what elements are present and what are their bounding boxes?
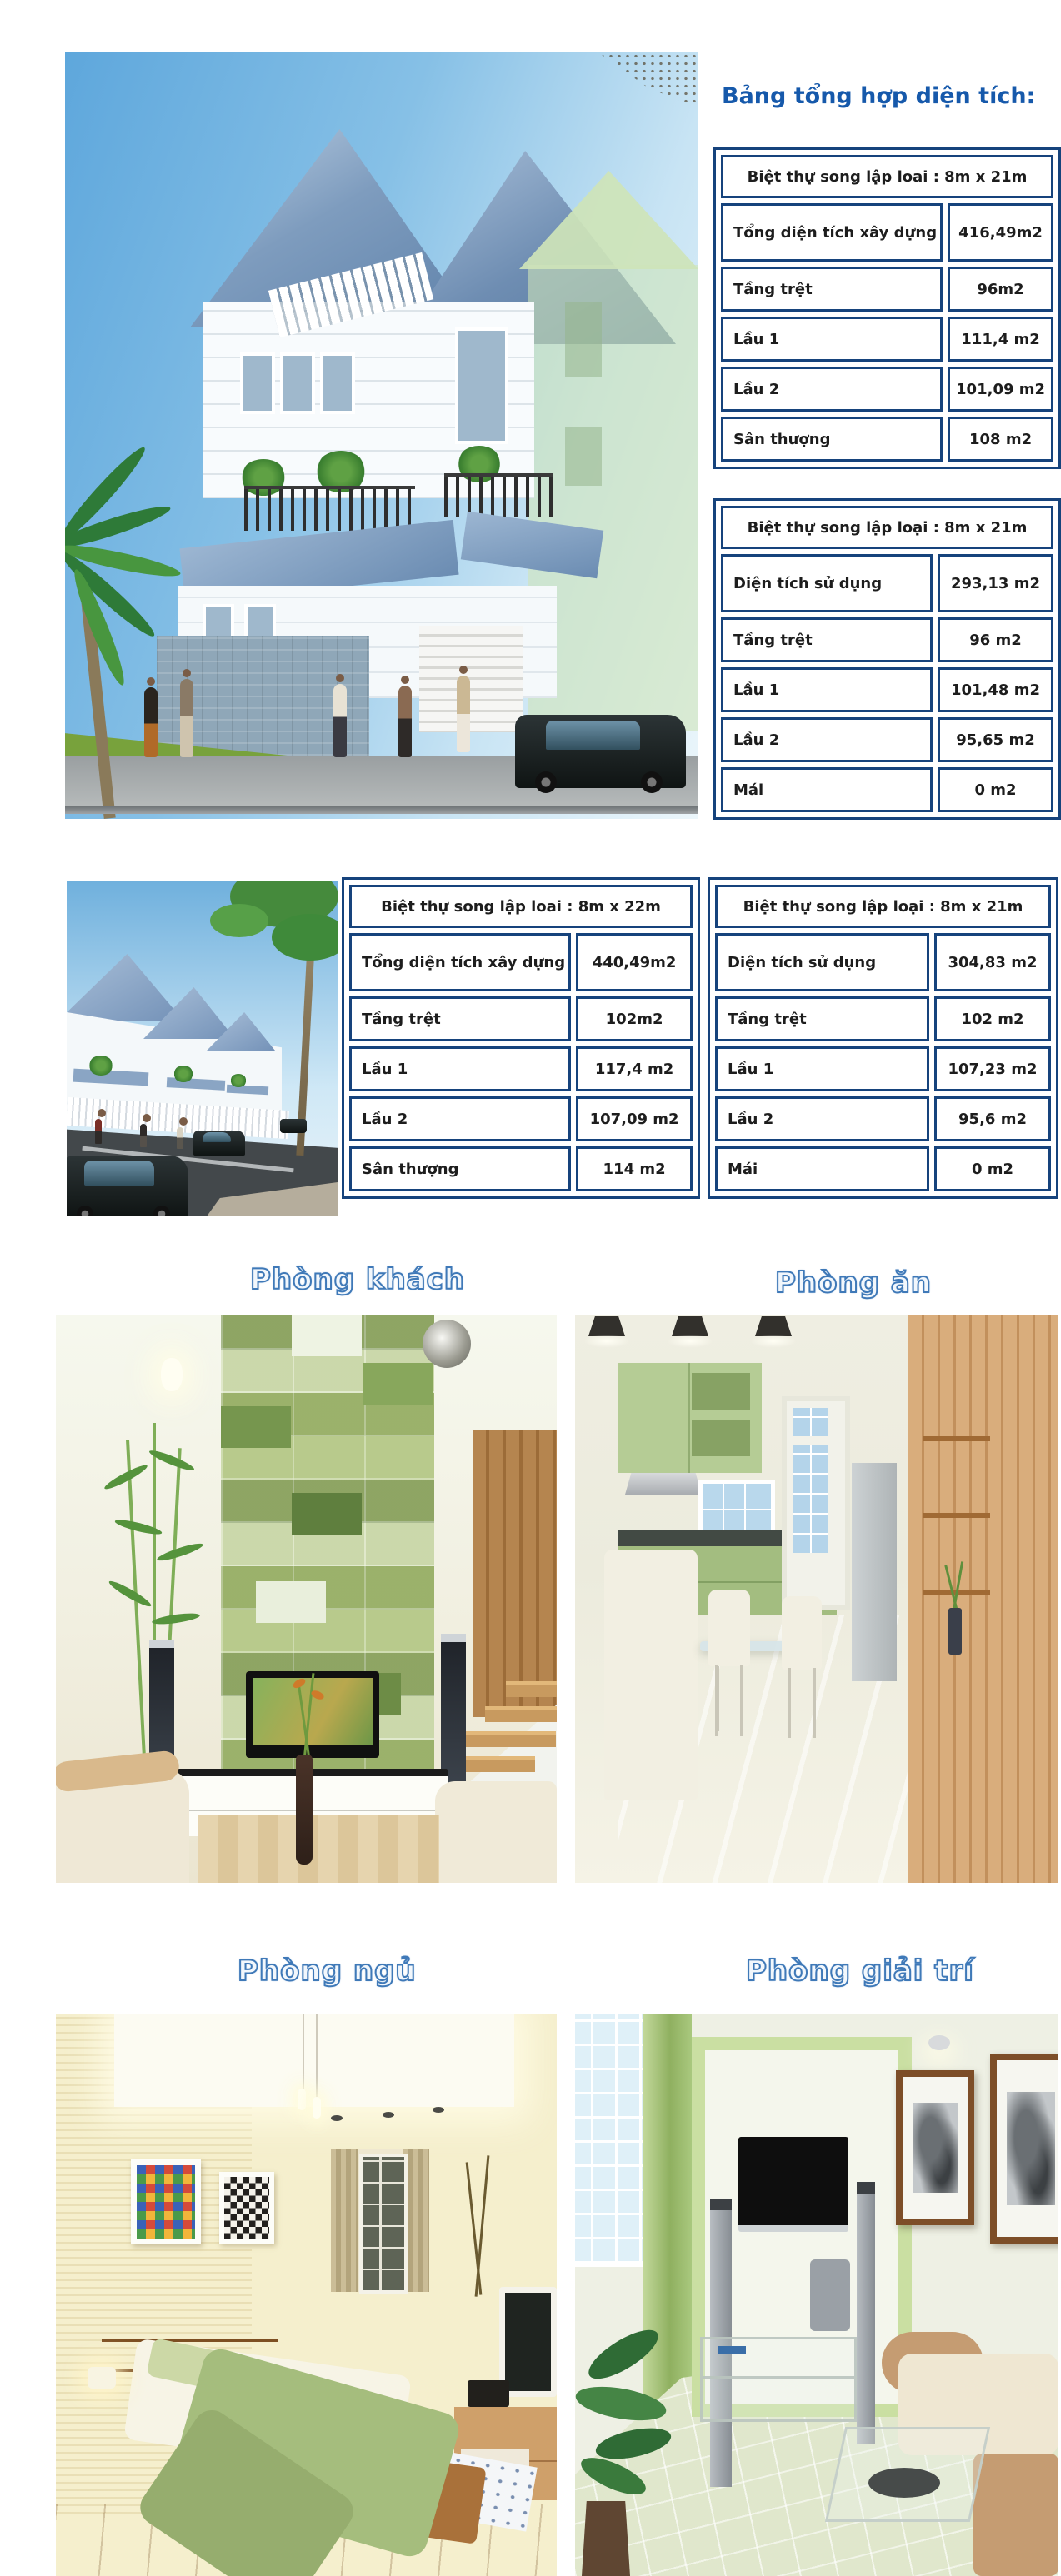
pedestrian — [180, 679, 193, 757]
table-row: Mái0 m2 — [715, 1146, 1051, 1191]
page-title: Bảng tổng hợp diện tích: — [722, 83, 1035, 109]
balcony-plant — [230, 1074, 247, 1087]
car-windshield — [84, 1161, 154, 1186]
window-sash — [359, 2154, 408, 2294]
table-header-row: Biệt thự song lập loai : 8m x 22m — [349, 885, 693, 928]
curtain — [331, 2149, 358, 2292]
mosaic-tile — [292, 1493, 362, 1535]
abstract-art — [913, 2103, 958, 2194]
car-wheel — [77, 1206, 93, 1216]
table-row: Tầng trệt102 m2 — [715, 996, 1051, 1041]
ceiling-lamp — [423, 1320, 471, 1368]
table-row: Lầu 295,6 m2 — [715, 1096, 1051, 1141]
lamp-glow — [583, 1335, 630, 1348]
dining-chair-foreground — [604, 1550, 698, 1800]
parked-car — [67, 1156, 188, 1216]
window — [280, 352, 315, 414]
tall-window — [455, 327, 508, 444]
dining-chair — [782, 1596, 822, 1670]
refrigerator — [852, 1463, 897, 1681]
mosaic-tile — [221, 1406, 291, 1448]
label-dining-room: Phòng ăn — [775, 1266, 932, 1300]
speaker-tower — [441, 1634, 466, 1788]
range-hood — [625, 1473, 702, 1495]
mosaic-tile — [292, 1315, 362, 1356]
plant-pot — [582, 2501, 630, 2576]
table-header: Biệt thự song lập loại : 8m x 21m — [721, 506, 1053, 549]
window — [575, 2014, 652, 2267]
ceiling-recess — [114, 2014, 514, 2107]
balcony-plant — [173, 1066, 193, 1082]
car-windshield — [203, 1132, 231, 1142]
image-bottom-bar — [65, 806, 698, 814]
lamp-glow — [750, 1335, 797, 1348]
stair-step — [485, 1706, 557, 1722]
dining-room-photo — [575, 1315, 1058, 1883]
glass-tv-stand — [700, 2337, 857, 2422]
table-row: Tầng trệt96m2 — [721, 267, 1053, 312]
art-mat — [903, 2077, 968, 2219]
bamboo-stalk — [126, 1440, 148, 1790]
open-shelf — [692, 1420, 750, 1456]
table-header: Biệt thự song lập loai : 8m x 21m — [721, 155, 1053, 198]
area-table-usable-8x21b: Biệt thự song lập loại : 8m x 21m Diện t… — [708, 877, 1058, 1199]
car-wheel — [153, 1206, 170, 1216]
back-door — [782, 1396, 850, 1610]
window — [240, 352, 275, 414]
balcony-railing — [244, 486, 415, 531]
niche-vase — [948, 1608, 962, 1655]
window-recess — [331, 2149, 429, 2292]
wall-art-checker — [219, 2172, 274, 2244]
area-table-construction-8x21: Biệt thự song lập loai : 8m x 21m Tổng d… — [713, 147, 1061, 469]
media-box — [468, 2380, 509, 2407]
pedestrian — [140, 1124, 147, 1147]
chair-leg — [715, 1665, 718, 1736]
subwoofer — [810, 2259, 850, 2331]
table-header-row: Biệt thự song lập loại : 8m x 21m — [715, 885, 1051, 928]
wood-slat-wall — [473, 1430, 557, 1717]
art-mat — [997, 2060, 1058, 2237]
table-row: Lầu 1107,23 m2 — [715, 1046, 1051, 1091]
framed-art — [896, 2070, 974, 2225]
bedside-lamp — [88, 2367, 116, 2389]
table-row: Lầu 1101,48 m2 — [721, 667, 1053, 712]
spotlight — [928, 2035, 950, 2050]
area-rug — [198, 1815, 439, 1883]
mosaic-tile — [363, 1363, 433, 1405]
table-row: Sân thượng114 m2 — [349, 1146, 693, 1191]
wall-tv — [738, 2137, 848, 2232]
downlight — [331, 2115, 343, 2121]
garage-door — [419, 626, 523, 732]
downlight — [383, 2112, 394, 2118]
books — [718, 2346, 746, 2354]
street-view-render — [67, 881, 338, 1216]
table-row: Lầu 2101,09 m2 — [721, 367, 1053, 412]
table-row: Lầu 1117,4 m2 — [349, 1046, 693, 1091]
street-car-far — [280, 1119, 307, 1133]
stair-step — [464, 1731, 556, 1747]
pedestrian — [177, 1127, 183, 1149]
table-row: Lầu 1111,4 m2 — [721, 317, 1053, 362]
sofa-cushion — [973, 2454, 1058, 2576]
art-canvas — [137, 2165, 195, 2239]
villa-exterior-render — [65, 52, 698, 819]
pendant-light — [313, 2097, 321, 2119]
pedestrian — [398, 686, 412, 757]
table-row: Mái0 m2 — [721, 767, 1053, 812]
bamboo-leaf — [107, 1578, 153, 1610]
car-wheel — [641, 771, 663, 793]
balcony-railing — [444, 473, 553, 517]
table-row: Sân thượng108 m2 — [721, 417, 1053, 462]
car-wheel — [535, 771, 557, 793]
lamp-glow — [667, 1335, 713, 1348]
table-row: Tổng diện tích xây dựng416,49m2 — [721, 203, 1053, 262]
car-windshield — [546, 721, 640, 750]
glass-shelf — [703, 2376, 854, 2379]
downlight — [433, 2107, 444, 2113]
tree-branch — [573, 52, 698, 132]
table-header: Biệt thự song lập loại : 8m x 21m — [715, 885, 1051, 928]
pendant-cord — [303, 2014, 304, 2090]
pendant-light — [298, 2089, 306, 2110]
floor-vase — [296, 1755, 313, 1865]
stair-step — [506, 1681, 557, 1697]
bamboo-leaf — [103, 1462, 149, 1492]
open-shelf — [692, 1373, 750, 1410]
wall-sconce — [161, 1358, 183, 1391]
mosaic-tile — [256, 1581, 326, 1623]
tv-screen — [505, 2293, 551, 2391]
area-table-usable-8x21: Biệt thự song lập loại : 8m x 21m Diện t… — [713, 498, 1061, 820]
entertainment-room-photo — [575, 2014, 1058, 2576]
ceiling-lamp — [755, 1316, 792, 1336]
villa-roof — [67, 954, 183, 1021]
chair-leg — [740, 1665, 743, 1736]
pedestrian — [457, 676, 470, 752]
decor-branch — [466, 2162, 483, 2294]
bamboo-leaf — [152, 1611, 201, 1626]
twin-window — [565, 302, 602, 377]
table-tray — [868, 2468, 940, 2498]
street-car — [193, 1131, 245, 1156]
brochure-page: Bảng tổng hợp diện tích: Biệt thự song l… — [0, 0, 1061, 2576]
dining-chair — [708, 1590, 750, 1666]
street-tree-canopy — [272, 914, 338, 961]
abstract-art — [1007, 2092, 1054, 2205]
door-glass — [793, 1445, 828, 1553]
living-room-photo — [56, 1315, 557, 1883]
door-transom-glass — [793, 1408, 828, 1436]
bamboo-leaf — [156, 1540, 204, 1563]
kitchen-window — [698, 1480, 775, 1535]
chair-leg — [788, 1668, 791, 1738]
table-row: Tầng trệt96 m2 — [721, 617, 1053, 662]
speaker-tower — [857, 2182, 875, 2444]
table-row: Tầng trệt102m2 — [349, 996, 693, 1041]
twin-window — [565, 427, 602, 486]
decor-branch — [475, 2155, 490, 2297]
chair-leg — [813, 1668, 816, 1738]
ceiling-lamp — [588, 1316, 625, 1336]
pedestrian — [144, 687, 158, 757]
pendant-cord — [316, 2014, 318, 2099]
label-living-room: Phòng khách — [250, 1263, 465, 1296]
table-row: Tổng diện tích xây dựng440,49m2 — [349, 933, 693, 991]
label-entertainment-room: Phòng giải trí — [746, 1954, 974, 1988]
table-row: Diện tích sử dụng293,13 m2 — [721, 554, 1053, 612]
table-row: Diện tích sử dụng304,83 m2 — [715, 933, 1051, 991]
art-canvas — [224, 2177, 269, 2239]
sofa-right — [435, 1781, 557, 1883]
pedestrian — [333, 684, 347, 757]
street-tree-canopy — [210, 904, 268, 937]
table-header-row: Biệt thự song lập loại : 8m x 21m — [721, 506, 1053, 549]
area-table-construction-8x22: Biệt thự song lập loai : 8m x 22m Tổng d… — [342, 877, 700, 1199]
table-row: Lầu 2107,09 m2 — [349, 1096, 693, 1141]
pedestrian — [95, 1119, 102, 1144]
window — [320, 352, 355, 414]
table-header-row: Biệt thự song lập loai : 8m x 21m — [721, 155, 1053, 198]
balcony-plant — [88, 1056, 113, 1076]
wall-art-color — [131, 2159, 201, 2244]
table-header: Biệt thự song lập loai : 8m x 22m — [349, 885, 693, 928]
bedroom-photo — [56, 2014, 557, 2576]
label-bedroom: Phòng ngủ — [238, 1954, 417, 1988]
sedan-car — [515, 715, 686, 788]
table-row: Lầu 295,65 m2 — [721, 717, 1053, 762]
framed-art — [990, 2054, 1058, 2244]
ceiling-lamp — [672, 1316, 708, 1336]
